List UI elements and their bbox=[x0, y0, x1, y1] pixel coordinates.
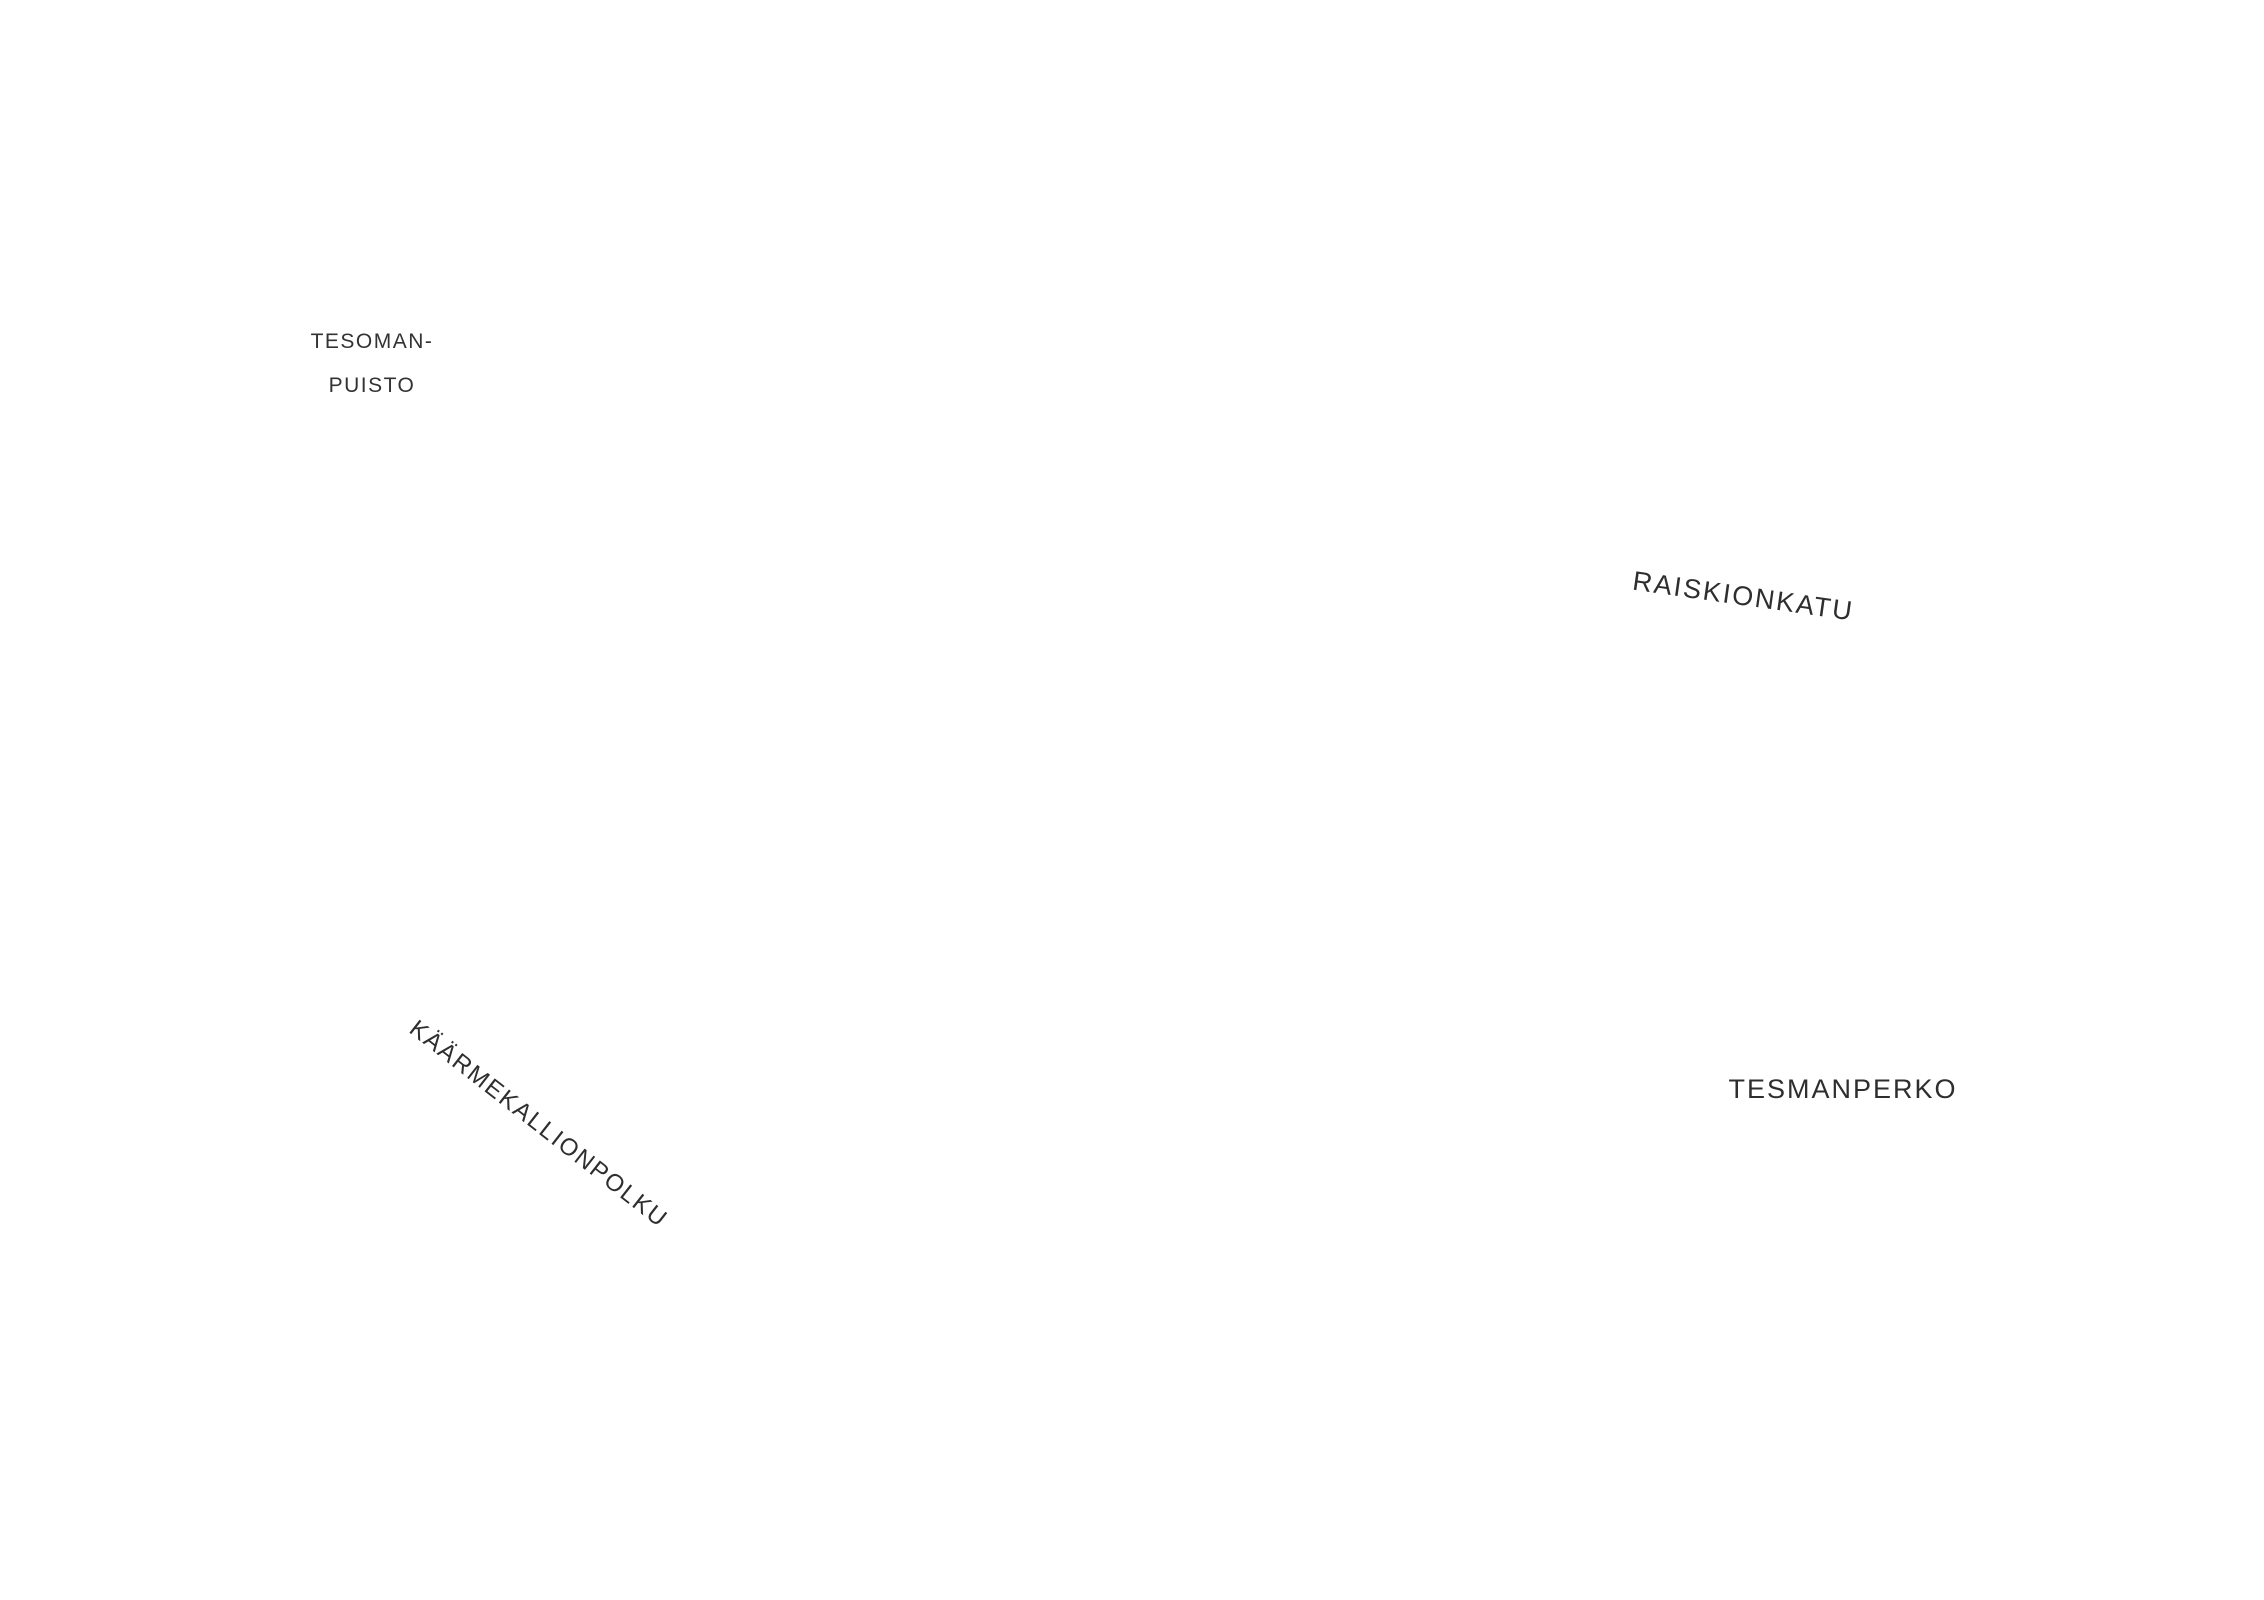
label-tesmanperko: TESMANPERKO bbox=[1728, 1074, 1957, 1104]
site-plan-drawing: TESOMAN- PUISTO RAISKIONKATU TESMANPERKO… bbox=[0, 0, 2264, 1600]
text-labels: TESOMAN- PUISTO RAISKIONKATU TESMANPERKO… bbox=[311, 330, 1958, 1233]
site-plan-page: TESOMAN- PUISTO RAISKIONKATU TESMANPERKO… bbox=[0, 0, 2264, 1600]
label-raiskionkatu: RAISKIONKATU bbox=[1631, 566, 1856, 627]
label-tesomanpuisto-line2: PUISTO bbox=[329, 374, 416, 397]
label-kaarmekallionpolku: KÄÄRMEKALLIONPOLKU bbox=[404, 1015, 673, 1233]
label-tesomanpuisto-line1: TESOMAN- bbox=[311, 330, 434, 353]
